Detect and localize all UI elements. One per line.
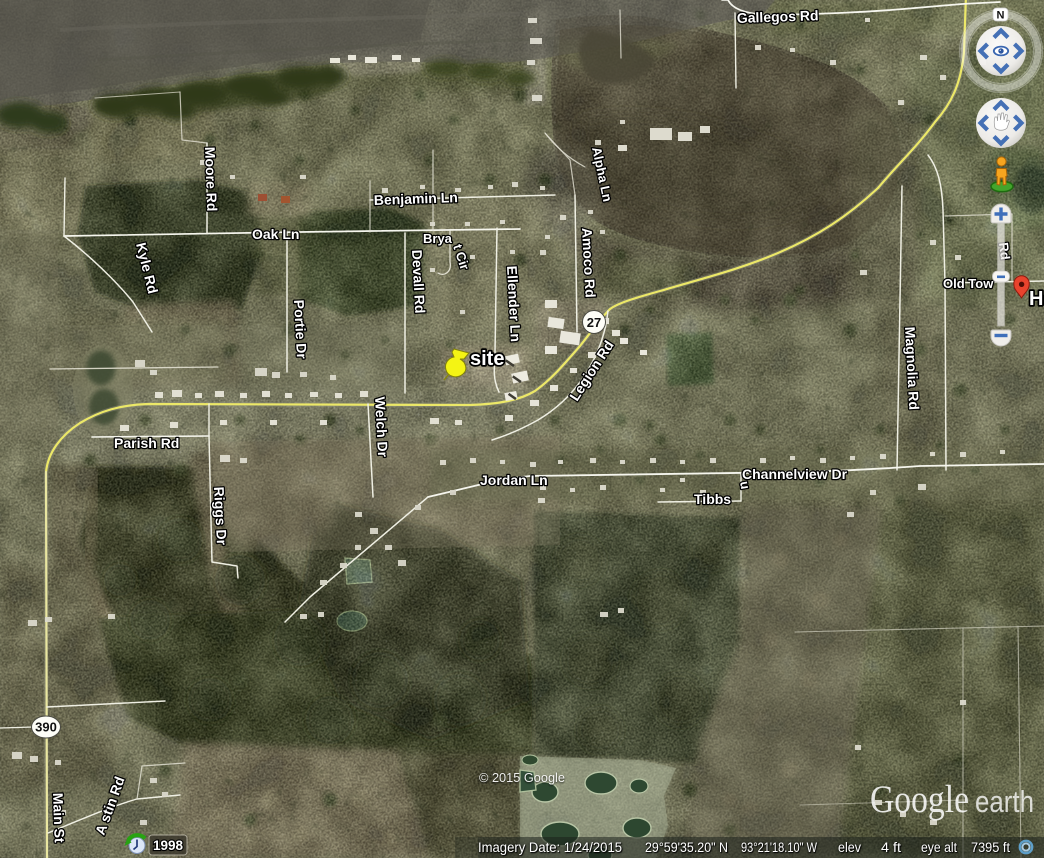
svg-text:Riggs Dr: Riggs Dr xyxy=(211,486,230,546)
svg-text:Moore Rd: Moore Rd xyxy=(202,147,220,212)
svg-text:Old Tow: Old Tow xyxy=(943,276,994,291)
svg-text:Imagery Date: 1/24/2015: Imagery Date: 1/24/2015 xyxy=(478,840,622,855)
svg-text:Oak Ln: Oak Ln xyxy=(252,226,299,242)
svg-text:29°59'35.20" N: 29°59'35.20" N xyxy=(645,840,728,855)
svg-text:Devall Rd: Devall Rd xyxy=(409,249,428,314)
svg-text:Brya: Brya xyxy=(423,231,453,246)
svg-text:Benjamin Ln: Benjamin Ln xyxy=(374,189,459,208)
svg-text:390: 390 xyxy=(35,720,57,735)
svg-text:93°21'18.10" W: 93°21'18.10" W xyxy=(741,840,817,855)
svg-text:Ha: Ha xyxy=(1029,288,1044,310)
svg-text:4 ft: 4 ft xyxy=(881,840,901,855)
svg-text:earth: earth xyxy=(975,784,1034,819)
svg-text:Gallegos Rd: Gallegos Rd xyxy=(737,7,819,26)
svg-text:N: N xyxy=(997,10,1005,22)
svg-text:Tibbs: Tibbs xyxy=(694,491,731,507)
svg-text:Google: Google xyxy=(870,778,969,821)
svg-text:Main St: Main St xyxy=(50,793,68,844)
svg-text:Parish Rd: Parish Rd xyxy=(114,435,179,451)
svg-text:7395 ft: 7395 ft xyxy=(971,840,1010,855)
svg-text:Jordan Ln: Jordan Ln xyxy=(480,472,548,488)
svg-text:© 2015 Google: © 2015 Google xyxy=(479,770,565,785)
svg-text:elev: elev xyxy=(838,840,861,855)
svg-text:27: 27 xyxy=(587,315,601,330)
svg-text:Welch Dr: Welch Dr xyxy=(372,396,391,458)
svg-text:eye alt: eye alt xyxy=(921,840,957,855)
svg-text:site: site xyxy=(470,348,504,370)
svg-text:Portie Dr: Portie Dr xyxy=(291,299,310,359)
svg-text:1998: 1998 xyxy=(153,838,184,853)
svg-text:Channelview Dr: Channelview Dr xyxy=(742,466,848,482)
